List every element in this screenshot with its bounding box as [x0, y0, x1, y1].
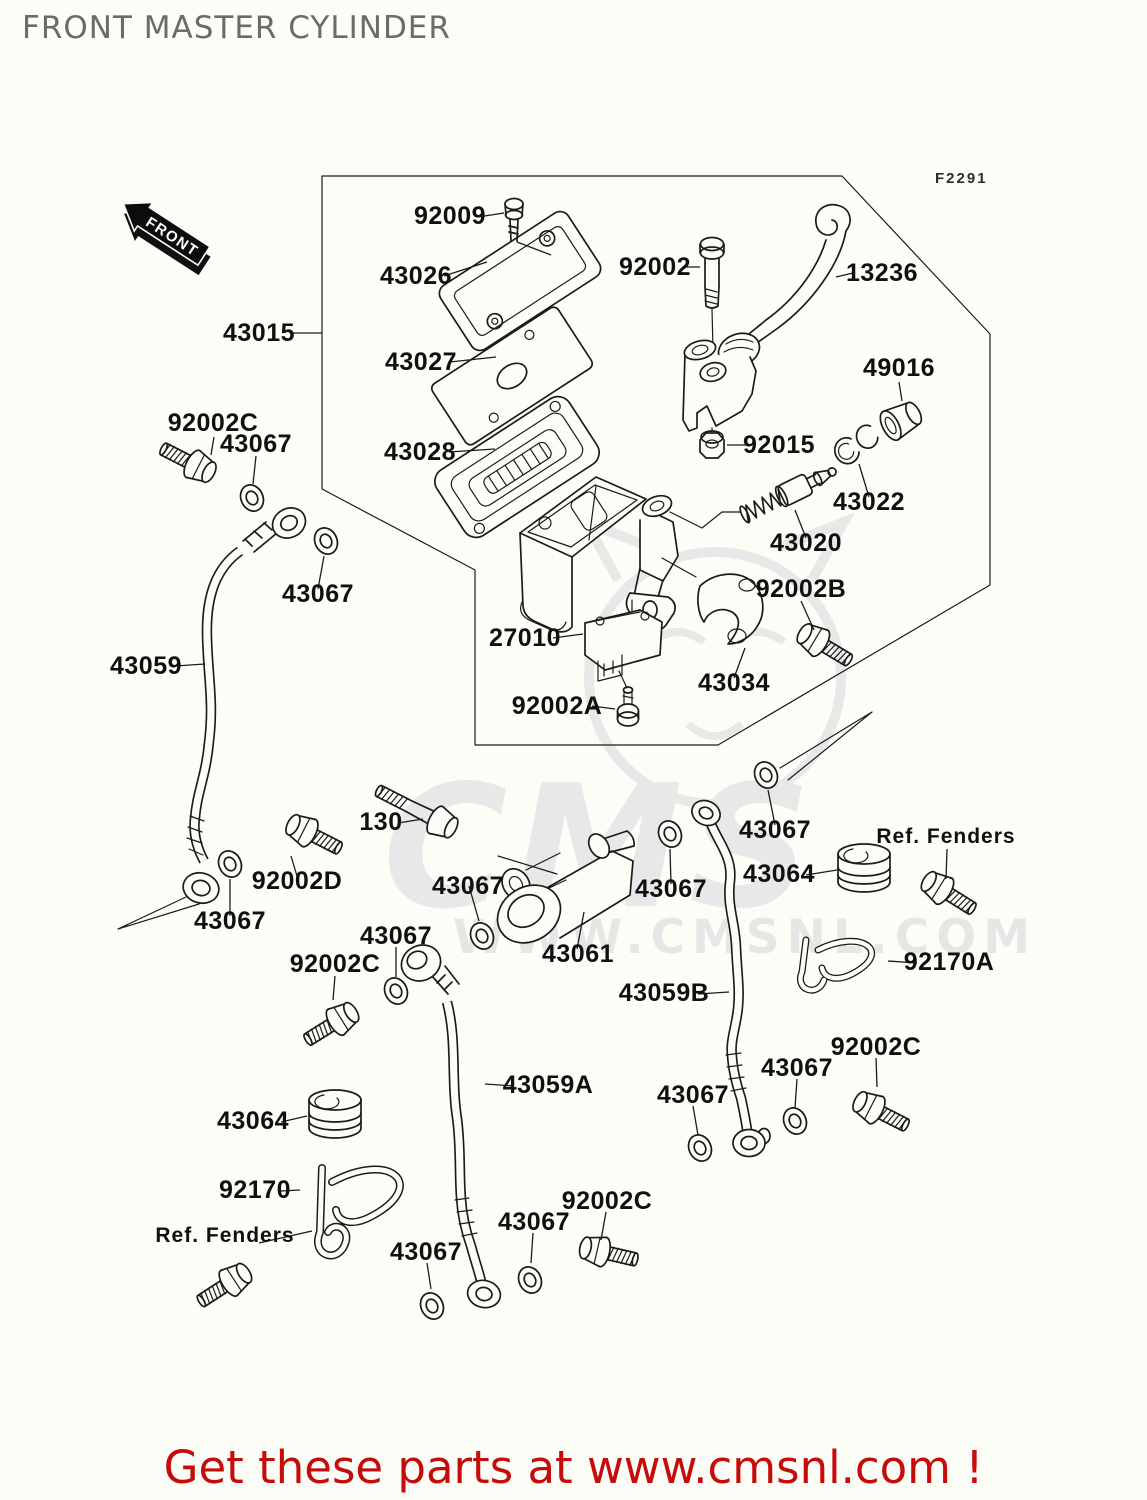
- part-label-ref-fenders-right: Ref. Fenders: [876, 825, 1015, 848]
- part-label-92002: 92002: [619, 253, 691, 281]
- part-label-43061: 43061: [542, 940, 614, 968]
- part-label-43059B: 43059B: [619, 979, 710, 1007]
- part-label-43022: 43022: [833, 488, 905, 516]
- switch-screw-art: [618, 671, 639, 726]
- part-label-43067-8: 43067: [761, 1054, 833, 1082]
- parts-diagram-canvas: CMS WWW.CMSNL.COM F2291 FRONT: [0, 0, 1147, 1500]
- parts-fiche-page: FRONT MASTER CYLINDER: [0, 0, 1147, 1500]
- part-label-43067-7: 43067: [360, 922, 432, 950]
- part-label-43067-11: 43067: [390, 1238, 462, 1266]
- grommet-right-art: [838, 844, 890, 892]
- part-label-130: 130: [359, 808, 402, 836]
- grommet-left-art: [309, 1090, 361, 1138]
- part-label-43067-10: 43067: [498, 1208, 570, 1236]
- pivot-locknut-art: [700, 431, 724, 458]
- hose-43059A-banjo-bottom-art: [465, 1277, 503, 1310]
- part-label-92002A: 92002A: [512, 692, 603, 720]
- dust-cover-art: [876, 396, 926, 443]
- part-label-43034: 43034: [698, 669, 770, 697]
- piston-assembly-art: [737, 460, 840, 525]
- part-label-43015: 43015: [223, 319, 295, 347]
- part-label-27010: 27010: [489, 624, 561, 652]
- part-label-92002D: 92002D: [252, 867, 343, 895]
- circlip-art: [831, 423, 880, 467]
- part-label-92002B: 92002B: [756, 575, 847, 603]
- part-label-ref-fenders-left: Ref. Fenders: [155, 1224, 294, 1247]
- part-label-43026: 43026: [380, 262, 452, 290]
- figure-code: F2291: [935, 170, 988, 187]
- part-label-43067-9: 43067: [657, 1081, 729, 1109]
- part-label-43020: 43020: [770, 529, 842, 557]
- part-label-92170A: 92170A: [904, 948, 995, 976]
- part-label-92002C-4: 92002C: [562, 1187, 653, 1215]
- part-label-43059A: 43059A: [503, 1071, 594, 1099]
- part-label-43064-right: 43064: [743, 860, 815, 888]
- hose-43059B-banjo-bottom-art: [733, 1129, 770, 1157]
- part-label-92002C-2: 92002C: [290, 950, 381, 978]
- hose-clamp-left-art: [318, 1168, 400, 1255]
- part-label-92002C-3: 92002C: [831, 1033, 922, 1061]
- part-label-92009: 92009: [414, 202, 486, 230]
- footer-cta-link[interactable]: Get these parts at www.cmsnl.com !: [0, 1441, 1147, 1494]
- part-label-43067-3: 43067: [739, 816, 811, 844]
- part-label-43064-left: 43064: [217, 1107, 289, 1135]
- part-label-43067-4: 43067: [432, 872, 504, 900]
- part-label-43067-2: 43067: [282, 580, 354, 608]
- brake-lever-art: [714, 205, 850, 373]
- part-label-13236: 13236: [846, 259, 918, 287]
- front-direction-arrow: FRONT: [110, 189, 218, 280]
- part-label-43028: 43028: [384, 438, 456, 466]
- pivot-bolt-art: [700, 238, 724, 350]
- part-label-43067-6: 43067: [194, 907, 266, 935]
- part-label-43027: 43027: [385, 348, 457, 376]
- part-label-92170: 92170: [219, 1176, 291, 1204]
- part-label-43059: 43059: [110, 652, 182, 680]
- part-label-92015: 92015: [743, 431, 815, 459]
- brake-hose-43059-art: [187, 551, 240, 861]
- part-label-49016: 49016: [863, 354, 935, 382]
- part-label-43067-5: 43067: [635, 875, 707, 903]
- diaphragm-plate-art: [429, 305, 594, 447]
- part-label-43067-1: 43067: [220, 430, 292, 458]
